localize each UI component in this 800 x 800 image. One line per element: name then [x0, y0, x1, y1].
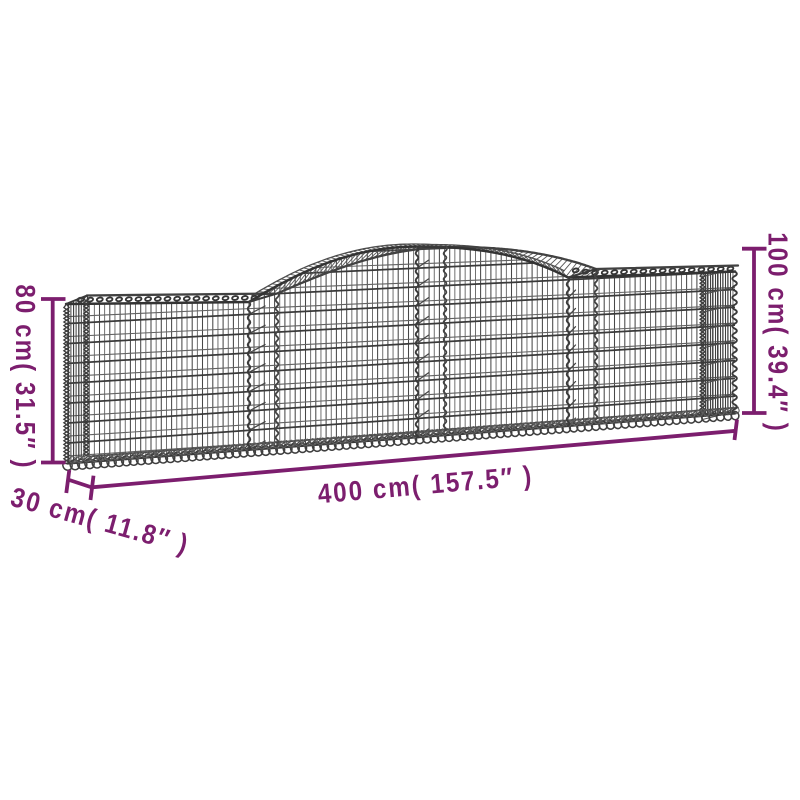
svg-text:100 cm( 39.4″ ): 100 cm( 39.4″ ) [762, 232, 792, 433]
svg-text:80 cm( 31.5″ ): 80 cm( 31.5″ ) [10, 284, 40, 469]
